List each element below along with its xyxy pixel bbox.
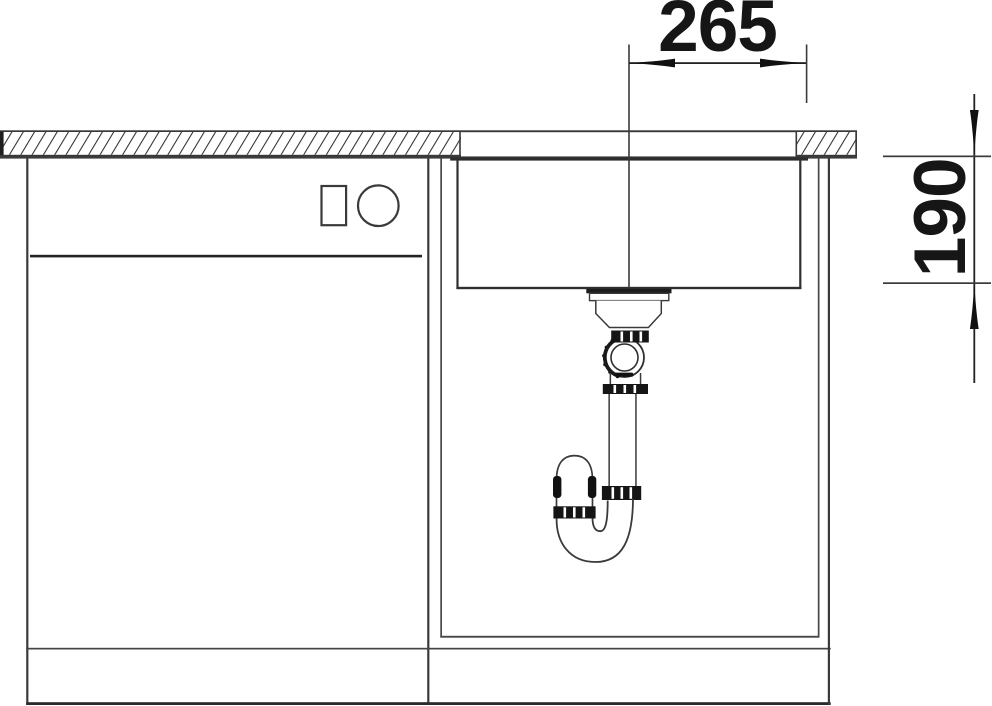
svg-text:265: 265 — [658, 0, 777, 67]
svg-text:190: 190 — [900, 158, 981, 277]
